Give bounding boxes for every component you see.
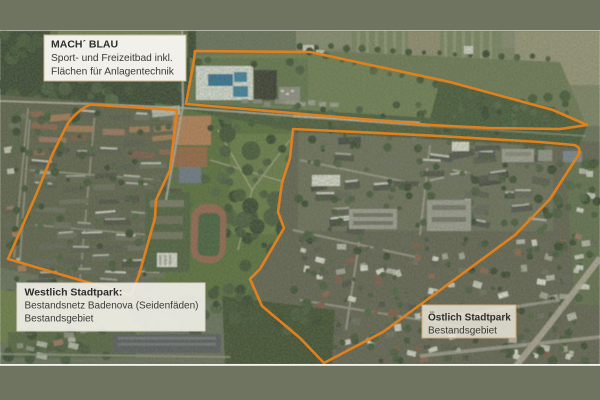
svg-text:Bestandsgebiet: Bestandsgebiet bbox=[428, 326, 497, 337]
svg-text:Bestandsnetz Badenova (Seidenf: Bestandsnetz Badenova (Seidenfäden) bbox=[25, 301, 199, 312]
svg-text:Flächen für Anlagentechnik: Flächen für Anlagentechnik bbox=[51, 67, 175, 78]
svg-text:Sport- und Freizeitbad inkl.: Sport- und Freizeitbad inkl. bbox=[51, 53, 173, 64]
svg-text:Westlich Stadtpark:: Westlich Stadtpark: bbox=[25, 287, 123, 299]
svg-text:Bestandsgebiet: Bestandsgebiet bbox=[25, 314, 94, 325]
svg-text:MACH´ BLAU: MACH´ BLAU bbox=[51, 39, 118, 51]
svg-text:Östlich Stadtpark: Östlich Stadtpark bbox=[428, 311, 511, 324]
